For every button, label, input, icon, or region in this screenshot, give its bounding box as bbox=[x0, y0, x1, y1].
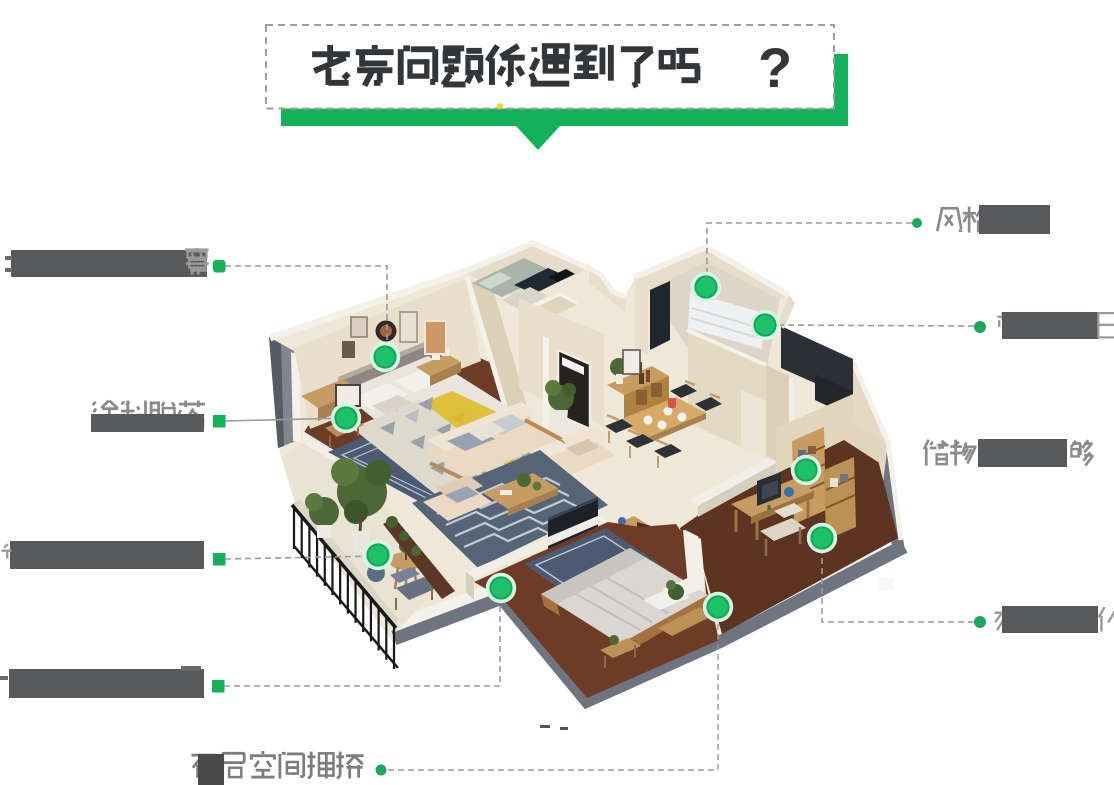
svg-text:?: ? bbox=[758, 36, 792, 99]
